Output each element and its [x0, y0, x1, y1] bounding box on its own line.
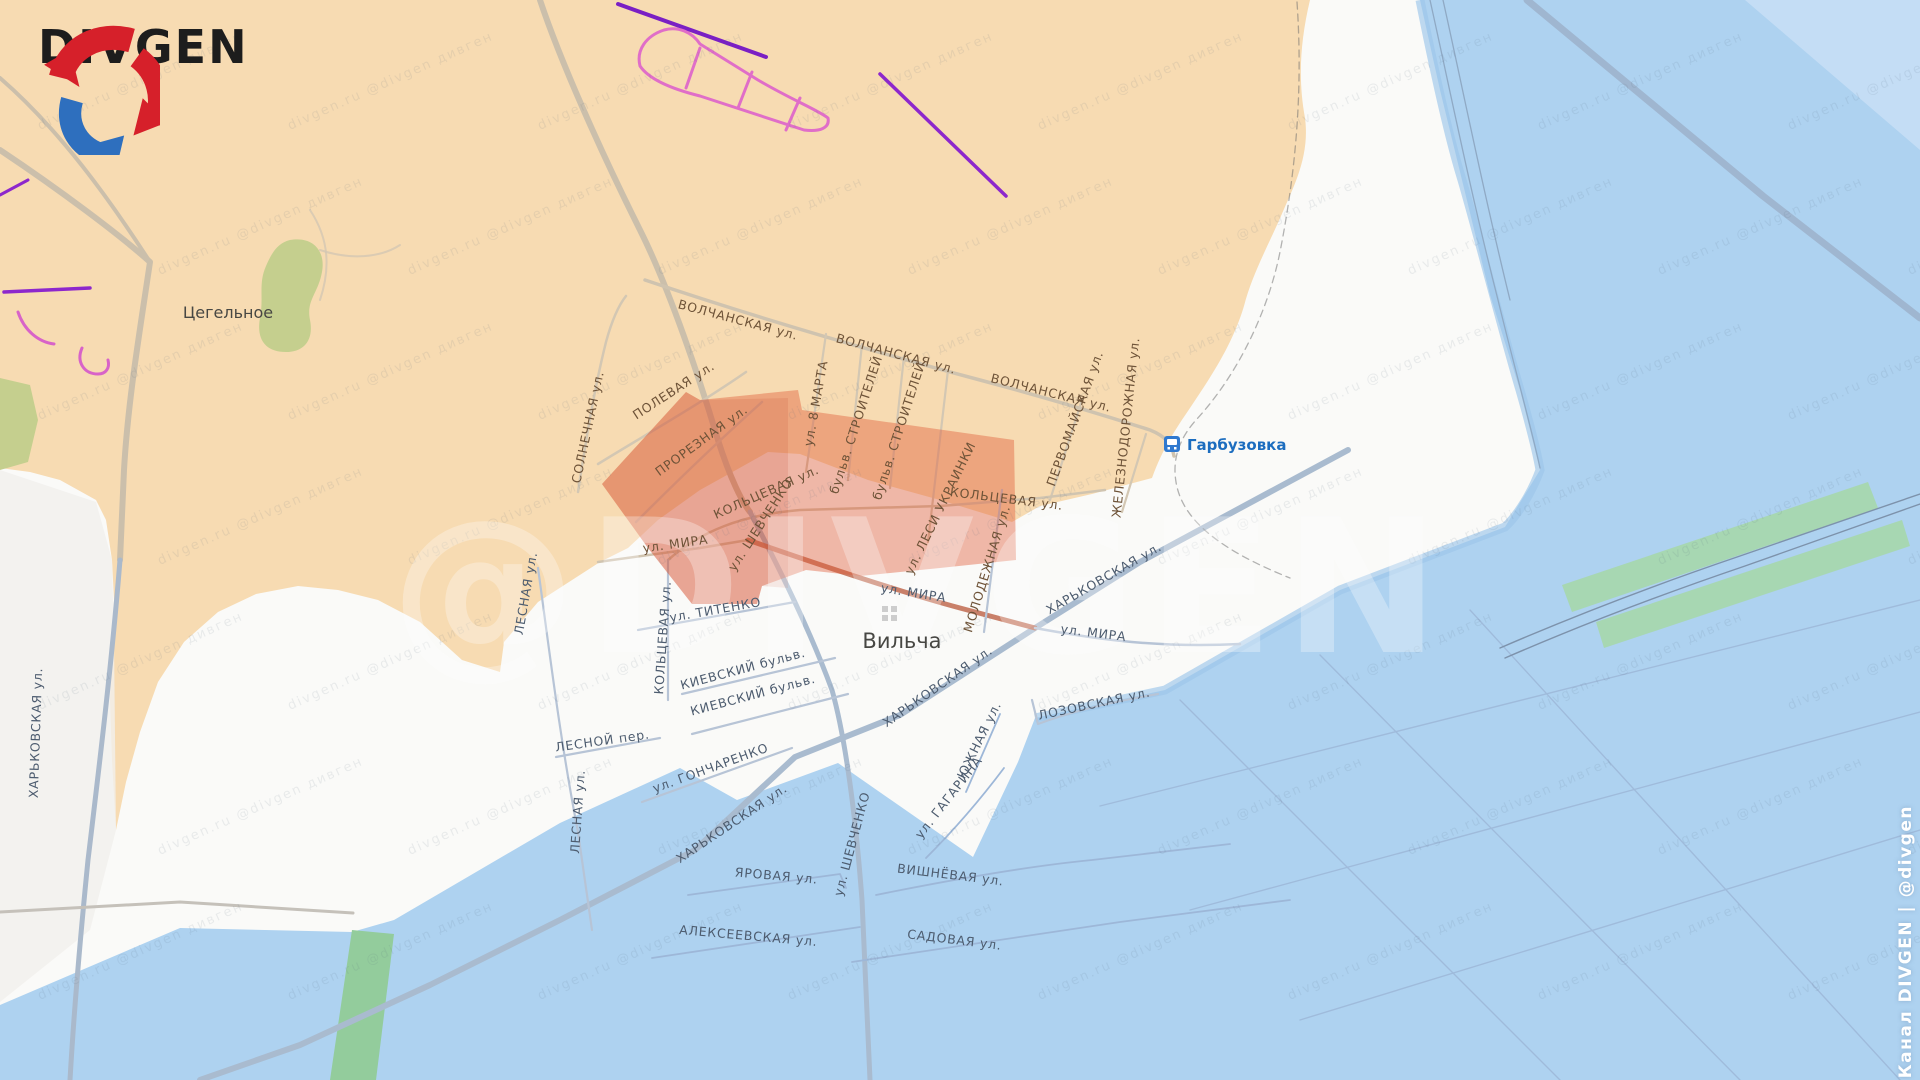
bus-stop-icon-wheel	[1168, 447, 1171, 450]
settlement-label-harbuzivka: Гарбузовка	[1187, 436, 1287, 454]
map-canvas: divgen.ru @divgen дивгенdivgen.ru @divge…	[0, 0, 1920, 1080]
watermark-tile: divgen.ru @divgen дивген	[1286, 319, 1496, 424]
settlement-label-vilcha: Вильча	[862, 629, 941, 653]
situation-map: divgen.ru @divgen дивгенdivgen.ru @divge…	[0, 0, 1920, 1080]
watermark-tile: divgen.ru @divgen дивген	[156, 754, 366, 859]
bus-stop-icon-wheel	[1174, 447, 1177, 450]
settlement-label-tsegelnoe: Цегельное	[183, 303, 273, 322]
bus-stop-icon-window	[1167, 439, 1177, 445]
station-stop-group: Гарбузовка	[1164, 436, 1287, 454]
brand-logo: DIVGEN	[38, 20, 249, 74]
zone-fields-gray	[0, 470, 116, 1002]
divgen-pinwheel-icon	[38, 20, 160, 155]
street-label: ЛЕСНОЙ пер.	[554, 726, 650, 754]
channel-watermark: Канал DIVGEN | @divgen	[1896, 805, 1916, 1078]
